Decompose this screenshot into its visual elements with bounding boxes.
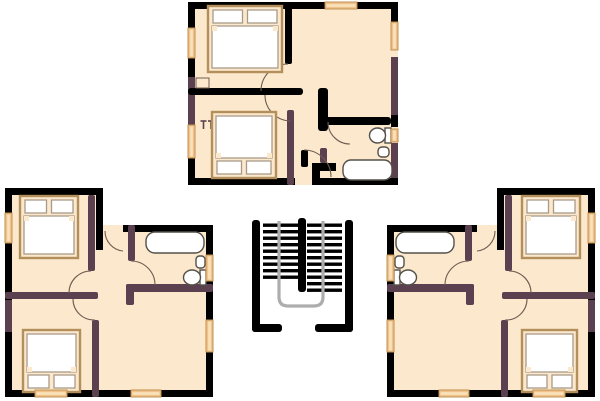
double-bed-icon [208, 6, 282, 72]
double-bed-icon [522, 196, 580, 258]
apartment-top [188, 2, 398, 185]
double-bed-icon [20, 196, 78, 258]
sink-icon [196, 256, 205, 268]
floor-plan-drawing [0, 0, 600, 401]
double-bed-icon [522, 330, 577, 392]
sink-icon [395, 256, 404, 268]
bathtub-icon [343, 160, 392, 180]
double-bed-icon [23, 330, 80, 392]
toilet-icon [394, 270, 417, 285]
bathtub-icon [146, 232, 204, 253]
toilet-icon [370, 128, 392, 143]
floor-plan-canvas [0, 0, 600, 401]
sink-icon [378, 147, 389, 157]
double-bed-icon [212, 112, 276, 178]
toilet-icon [184, 270, 207, 285]
bathtub-icon [396, 232, 454, 253]
